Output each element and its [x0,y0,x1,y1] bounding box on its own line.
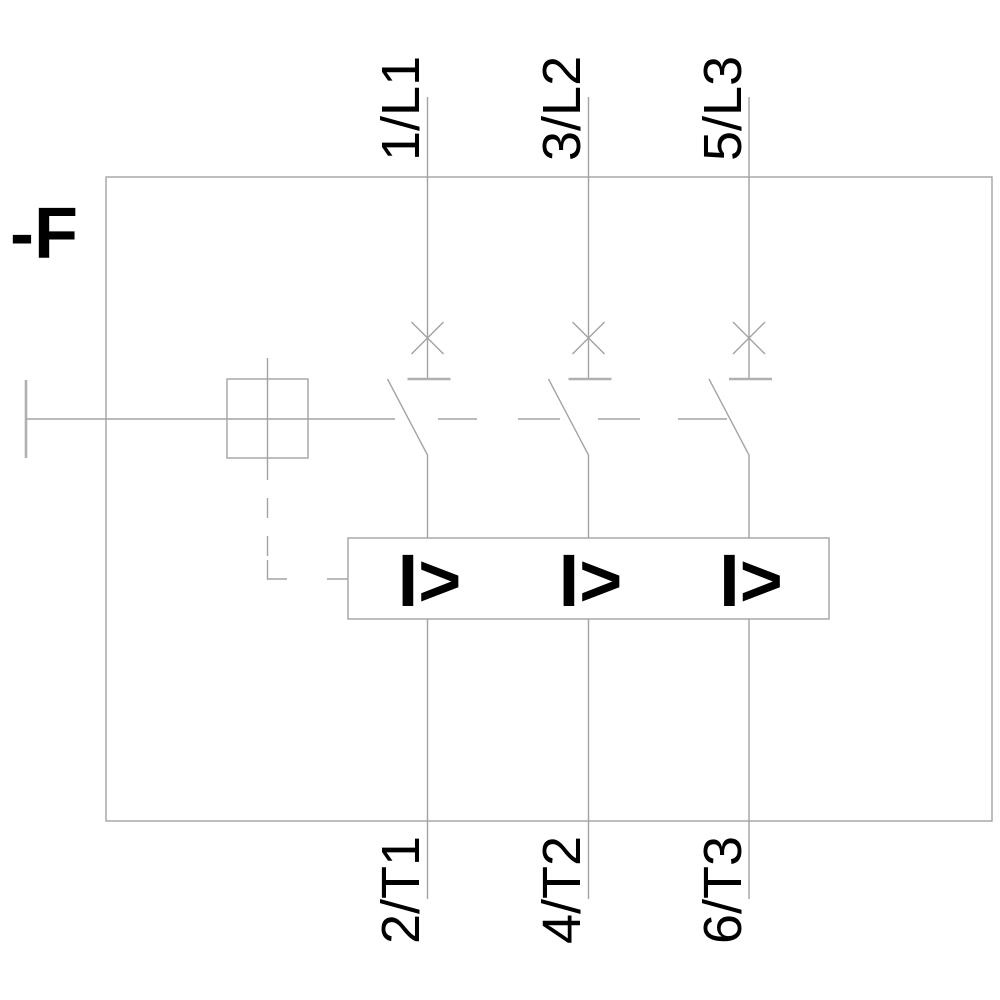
actuator [26,358,395,480]
terminal-label-bottom-2: 4/T2 [532,836,592,944]
switch-blade [388,379,428,538]
pole-2: 3/L2 I> 4/T2 [532,56,622,944]
switch-blade [709,379,749,538]
terminal-label-bottom-1: 2/T1 [371,836,431,944]
pole-3: 5/L3 I> 6/T3 [693,56,783,944]
switch-blade [549,379,589,538]
overcurrent-trip-symbol: I> [398,539,462,622]
terminal-label-top-3: 5/L3 [693,56,753,161]
device-designation-label: -F [10,194,78,274]
terminal-label-top-1: 1/L1 [371,56,431,161]
schematic-page: -F 1/L1 [0,0,1000,1000]
schematic-canvas: -F 1/L1 [0,0,1000,1000]
overcurrent-trip-symbol: I> [719,539,783,622]
device-boundary [106,177,992,821]
trip-linkage-dashed [268,498,349,579]
terminal-label-bottom-3: 6/T3 [693,836,753,944]
overcurrent-trip-symbol: I> [559,539,623,622]
trip-linkage-corner-dash [268,560,288,579]
pole-1: 1/L1 I> 2/T1 [371,56,461,944]
terminal-label-top-2: 3/L2 [532,56,592,161]
